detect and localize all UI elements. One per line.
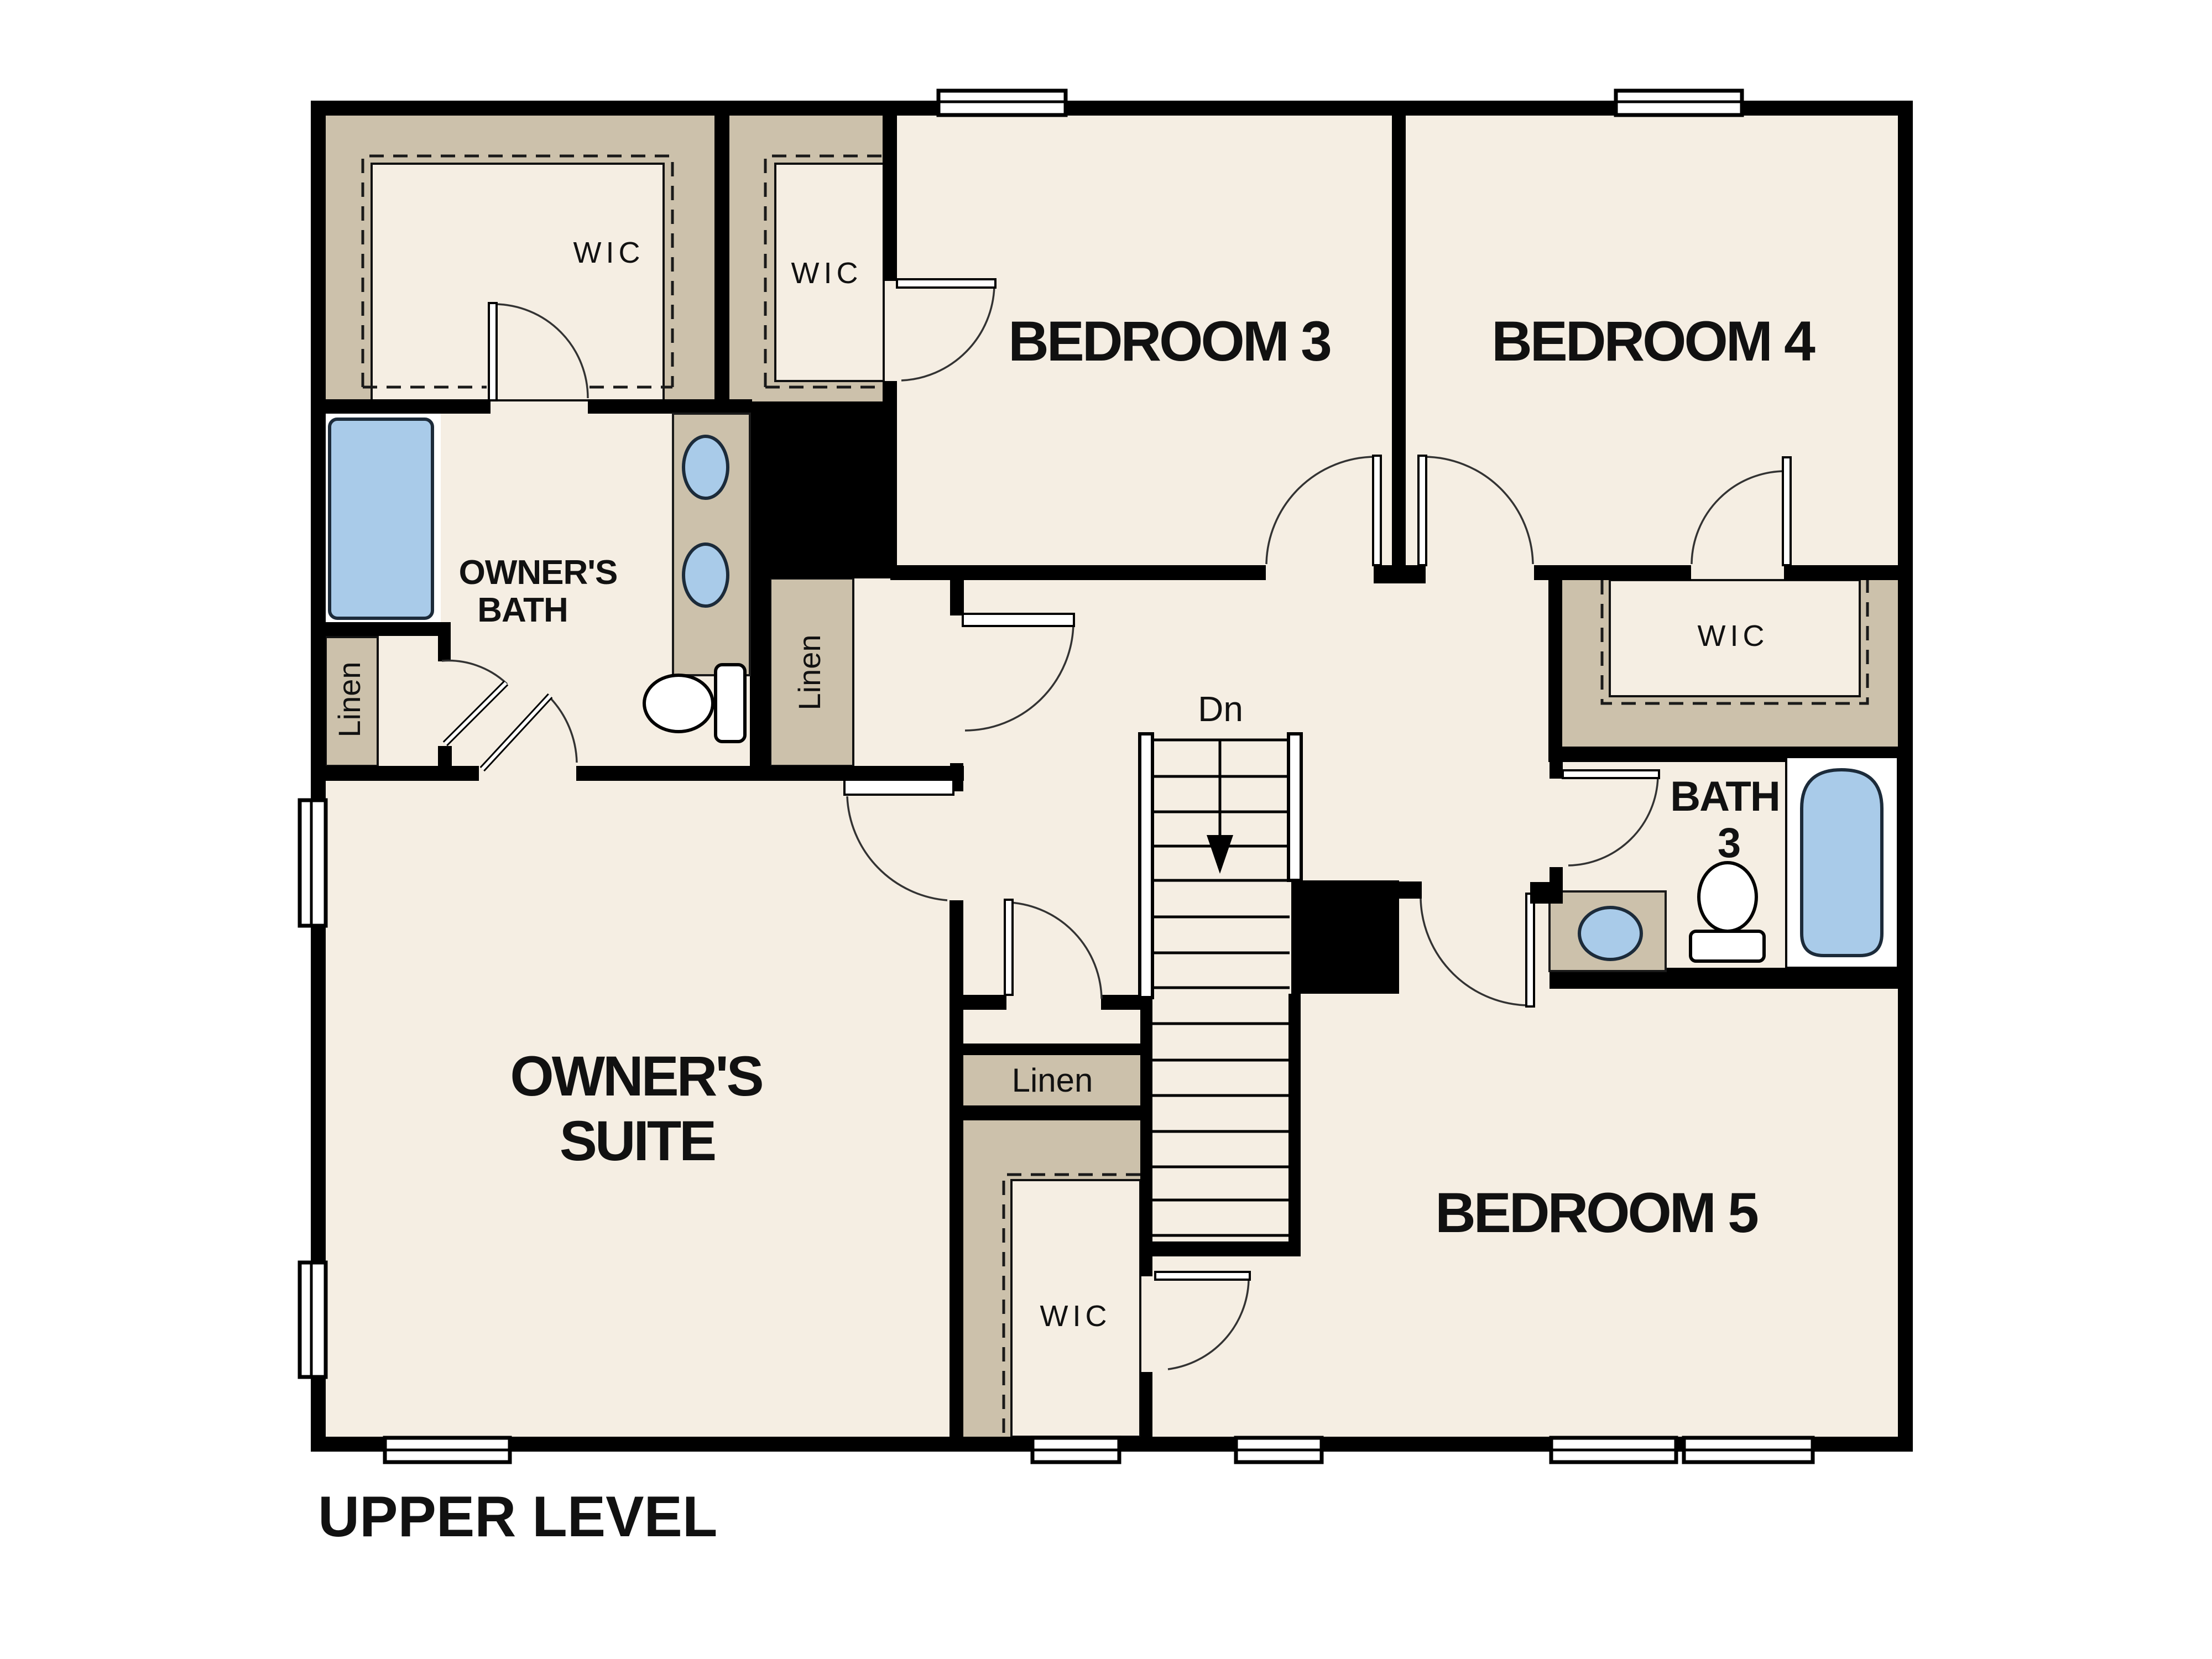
svg-text:WIC: WIC bbox=[1040, 1300, 1112, 1333]
svg-text:SUITE: SUITE bbox=[560, 1109, 715, 1172]
svg-text:Linen: Linen bbox=[332, 661, 367, 737]
svg-text:UPPER LEVEL: UPPER LEVEL bbox=[318, 1485, 717, 1549]
svg-text:WIC: WIC bbox=[1698, 619, 1769, 653]
svg-text:BATH: BATH bbox=[1670, 773, 1779, 820]
svg-text:Linen: Linen bbox=[1012, 1062, 1093, 1099]
svg-text:BEDROOM 5: BEDROOM 5 bbox=[1435, 1181, 1757, 1244]
svg-text:BATH: BATH bbox=[477, 591, 568, 629]
svg-text:WIC: WIC bbox=[791, 257, 863, 290]
svg-text:WIC: WIC bbox=[573, 236, 645, 269]
svg-text:OWNER'S: OWNER'S bbox=[510, 1045, 762, 1108]
svg-text:BEDROOM 4: BEDROOM 4 bbox=[1491, 310, 1815, 373]
svg-text:3: 3 bbox=[1718, 820, 1740, 867]
svg-text:OWNER'S: OWNER'S bbox=[459, 554, 618, 592]
svg-text:Linen: Linen bbox=[792, 634, 827, 710]
svg-text:Dn: Dn bbox=[1198, 689, 1243, 729]
svg-text:BEDROOM 3: BEDROOM 3 bbox=[1008, 310, 1331, 373]
